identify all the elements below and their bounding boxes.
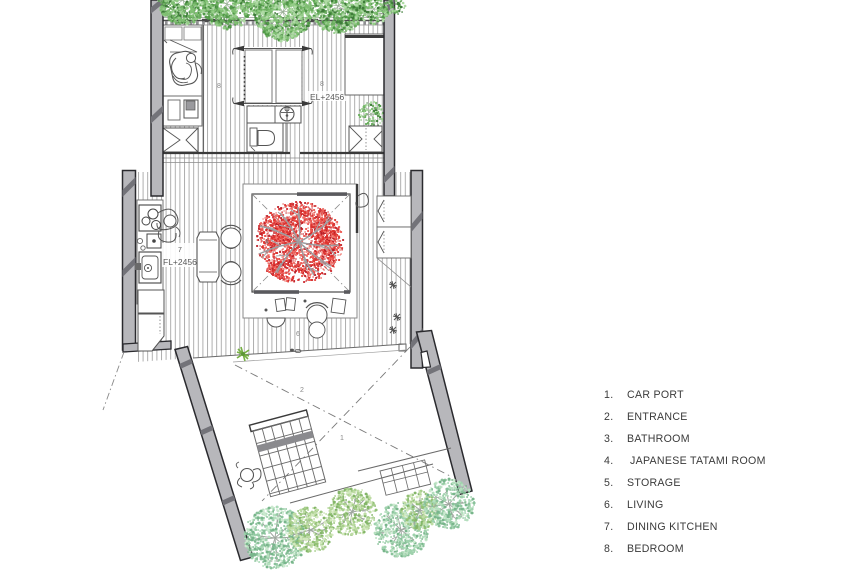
- svg-text:FL+2456: FL+2456: [163, 257, 197, 267]
- svg-text:LIVING: LIVING: [627, 499, 664, 511]
- svg-text:4.: 4.: [604, 455, 613, 467]
- svg-text:DINING KITCHEN: DINING KITCHEN: [627, 521, 718, 533]
- svg-text:4: 4: [265, 239, 269, 246]
- svg-text:STORAGE: STORAGE: [627, 477, 681, 489]
- svg-text:8: 8: [320, 81, 324, 88]
- svg-text:5.: 5.: [604, 477, 613, 489]
- svg-text:6: 6: [296, 331, 300, 338]
- svg-text:EL+2456: EL+2456: [310, 92, 345, 102]
- svg-text:1.: 1.: [604, 389, 613, 401]
- svg-text:1: 1: [340, 435, 344, 442]
- svg-text:BEDROOM: BEDROOM: [627, 543, 684, 555]
- svg-text:JAPANESE TATAMI ROOM: JAPANESE TATAMI ROOM: [630, 455, 766, 467]
- svg-text:8: 8: [217, 83, 221, 90]
- svg-text:6.: 6.: [604, 499, 613, 511]
- svg-text:8.: 8.: [604, 543, 613, 555]
- svg-text:7: 7: [178, 247, 182, 254]
- svg-text:3.: 3.: [604, 433, 613, 445]
- svg-text:7.: 7.: [604, 521, 613, 533]
- svg-text:ENTRANCE: ENTRANCE: [627, 411, 688, 423]
- svg-text:BATHROOM: BATHROOM: [627, 433, 690, 445]
- svg-text:CAR PORT: CAR PORT: [627, 389, 684, 401]
- svg-text:2: 2: [300, 387, 304, 394]
- svg-text:2.: 2.: [604, 411, 613, 423]
